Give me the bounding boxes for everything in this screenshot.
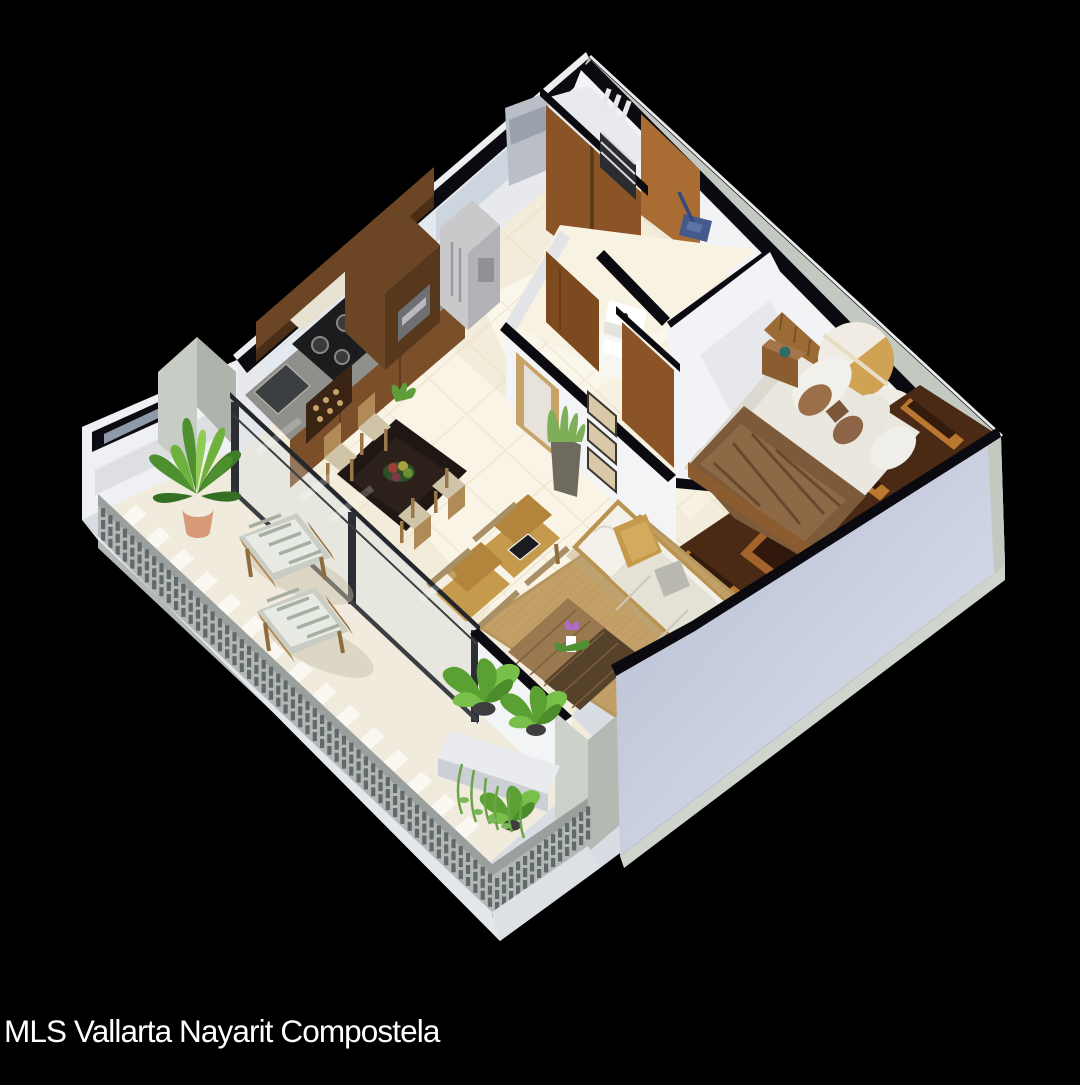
svg-text:MLS Vallarta Nayarit Compostel: MLS Vallarta Nayarit Compostela: [4, 1013, 441, 1049]
